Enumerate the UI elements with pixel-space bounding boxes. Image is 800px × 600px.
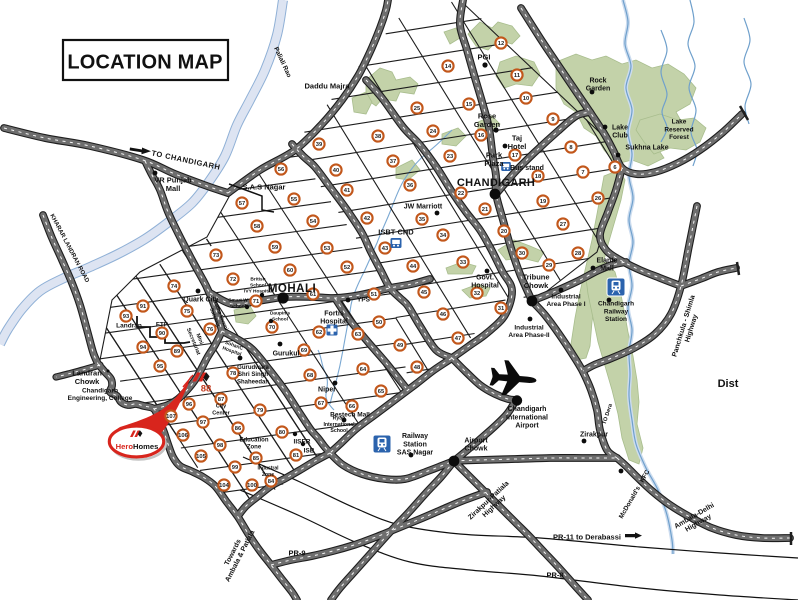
svg-text:95: 95 [157,364,164,370]
svg-text:Smart WSchool: Smart WSchool [228,298,248,310]
svg-text:54: 54 [310,219,317,225]
svg-text:HeroHomes: HeroHomes [116,442,159,451]
svg-text:96: 96 [186,402,193,408]
svg-text:Bus stand: Bus stand [510,165,544,172]
svg-text:39: 39 [316,142,323,148]
svg-text:29: 29 [546,263,553,269]
svg-text:67: 67 [318,401,324,407]
svg-text:42: 42 [364,216,370,222]
svg-text:91: 91 [140,304,147,310]
svg-text:IISER: IISER [294,438,311,445]
svg-text:S.A.S Nagar: S.A.S Nagar [243,183,286,192]
svg-text:14: 14 [445,64,452,70]
svg-text:58: 58 [254,224,261,230]
svg-text:81: 81 [293,453,300,459]
svg-text:PR-11 to Derabassi: PR-11 to Derabassi [553,533,621,542]
svg-text:53: 53 [324,246,331,252]
svg-text:78: 78 [230,371,237,377]
svg-text:48: 48 [414,365,421,371]
svg-text:PR-8: PR-8 [546,571,563,580]
svg-text:56: 56 [278,167,285,173]
svg-text:16: 16 [478,133,485,139]
svg-text:LOCATION MAP: LOCATION MAP [67,52,222,74]
svg-text:27: 27 [560,222,566,228]
svg-text:94: 94 [140,345,147,351]
svg-text:23: 23 [447,154,454,160]
svg-text:98: 98 [217,443,224,449]
svg-text:22: 22 [458,191,464,197]
svg-text:CHANDIGARH: CHANDIGARH [457,177,535,189]
svg-text:Niper: Niper [318,386,336,393]
svg-text:80: 80 [279,430,285,436]
svg-text:44: 44 [410,264,417,270]
svg-text:26: 26 [595,196,602,202]
svg-text:64: 64 [360,367,367,373]
svg-text:73: 73 [213,253,220,259]
svg-text:60: 60 [287,268,293,274]
svg-text:93: 93 [123,314,130,320]
svg-text:FortisHospital: FortisHospital [320,310,348,325]
svg-text:Daddu Majra: Daddu Majra [304,82,350,91]
svg-text:65: 65 [378,389,385,395]
svg-text:Gurukul: Gurukul [273,350,300,357]
svg-text:70: 70 [269,325,275,331]
svg-text:ParkPlaza: ParkPlaza [484,150,504,168]
svg-text:FTP: FTP [156,321,169,328]
svg-text:46: 46 [440,312,447,318]
svg-text:AirportChowk: AirportChowk [464,437,488,452]
svg-text:71: 71 [253,299,260,305]
svg-text:38: 38 [375,134,382,140]
svg-text:20: 20 [501,229,507,235]
svg-text:84: 84 [268,479,275,485]
svg-text:25: 25 [414,106,421,112]
svg-text:MOHALI: MOHALI [268,283,316,295]
svg-text:41: 41 [344,188,351,194]
svg-text:32: 32 [474,291,480,297]
svg-text:55: 55 [291,197,298,203]
svg-text:97: 97 [200,420,206,426]
svg-text:66: 66 [349,404,356,410]
svg-text:51: 51 [371,292,378,298]
svg-text:40: 40 [333,168,339,174]
svg-text:TribuneChowk: TribuneChowk [522,272,549,290]
svg-text:12: 12 [498,41,504,47]
svg-text:GurudwaraShri SinghShaheedan: GurudwaraShri SinghShaheedan [237,365,270,385]
svg-text:LandranChowk: LandranChowk [72,368,102,386]
svg-text:LakeClub: LakeClub [612,124,628,139]
svg-text:85: 85 [253,456,260,462]
svg-text:11: 11 [514,73,521,79]
svg-text:30: 30 [519,251,525,257]
svg-text:75: 75 [184,309,191,315]
svg-text:74: 74 [171,284,178,290]
svg-text:88: 88 [201,384,212,395]
svg-text:105: 105 [196,454,206,460]
svg-text:100: 100 [247,483,257,489]
svg-text:JW Marriott: JW Marriott [404,203,443,210]
svg-text:IndustrialArea Phase-II: IndustrialArea Phase-II [508,324,549,339]
svg-text:PGI: PGI [478,53,491,62]
svg-text:104: 104 [219,483,229,489]
svg-text:57: 57 [239,201,245,207]
svg-text:50: 50 [376,320,382,326]
svg-text:18: 18 [535,174,542,180]
svg-text:Sukhna Lake: Sukhna Lake [625,144,668,151]
svg-text:33: 33 [460,260,467,266]
svg-text:21: 21 [482,207,489,213]
svg-text:87: 87 [218,397,224,403]
svg-text:IndustrialArea Phase I: IndustrialArea Phase I [546,293,585,308]
svg-text:68: 68 [307,373,314,379]
svg-text:79: 79 [257,408,264,414]
svg-text:62: 62 [316,330,322,336]
svg-text:17: 17 [512,153,518,159]
svg-text:43: 43 [382,246,389,252]
svg-text:90: 90 [159,331,165,337]
svg-text:Zirakpur: Zirakpur [580,431,608,438]
svg-text:45: 45 [421,290,428,296]
svg-text:34: 34 [440,233,447,239]
svg-text:28: 28 [575,251,582,257]
svg-text:ISBT CHD: ISBT CHD [378,228,414,237]
svg-text:52: 52 [344,265,350,271]
svg-text:PR-9: PR-9 [288,549,305,558]
svg-text:49: 49 [397,343,404,349]
svg-text:19: 19 [540,199,547,205]
svg-text:Daupin'sSchool: Daupin'sSchool [270,311,290,323]
svg-text:31: 31 [498,306,505,312]
svg-text:89: 89 [174,349,181,355]
svg-text:106: 106 [178,433,188,439]
svg-text:Dist: Dist [718,378,739,390]
svg-text:37: 37 [390,159,396,165]
svg-text:36: 36 [407,183,414,189]
svg-text:86: 86 [235,426,242,432]
svg-text:ISB: ISB [304,447,315,454]
svg-text:47: 47 [455,336,461,342]
svg-text:YPS: YPS [357,296,371,303]
svg-text:76: 76 [207,327,214,333]
svg-text:69: 69 [301,348,308,354]
svg-text:35: 35 [419,217,426,223]
svg-text:107: 107 [166,414,176,420]
svg-text:15: 15 [466,102,473,108]
svg-text:7: 7 [581,170,584,176]
svg-text:63: 63 [355,332,362,338]
svg-text:10: 10 [523,96,529,102]
svg-text:59: 59 [272,245,279,251]
svg-text:72: 72 [230,277,236,283]
svg-text:24: 24 [430,129,437,135]
svg-text:99: 99 [232,465,239,471]
svg-text:Landran: Landran [116,322,142,329]
